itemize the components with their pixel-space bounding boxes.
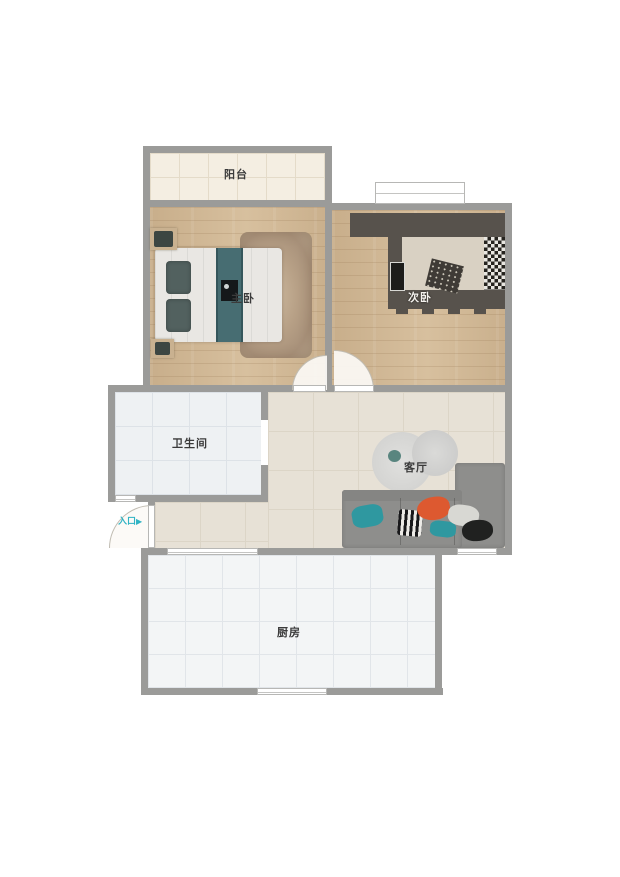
bed-foot [422, 309, 434, 314]
second-bedroom-frame-bottom [388, 290, 505, 309]
bed-pillow-bottom [166, 299, 191, 332]
nightstand-top [150, 228, 177, 250]
bed-foot [396, 309, 408, 314]
wall-bathroom-left [108, 385, 115, 502]
bed-foot [448, 309, 460, 314]
hallway-floor [155, 502, 268, 548]
balcony-label: 阳台 [224, 166, 248, 182]
bathroom-label: 卫生间 [172, 435, 208, 451]
kitchen-window [257, 688, 327, 695]
bed-foot [474, 309, 486, 314]
living-room-window [457, 548, 497, 555]
wall-balcony-top [143, 146, 332, 153]
kitchen-entry-slider [167, 548, 258, 555]
kitchen-floor [148, 555, 435, 688]
entrance-arrow-icon: ▶ [136, 517, 142, 526]
nightstand-lamp [154, 231, 173, 247]
nightstand-lamp [155, 342, 170, 355]
wall-balcony-right [325, 146, 332, 210]
bed-pillow-top [166, 261, 191, 294]
master-bedroom-label: 主卧 [231, 290, 255, 306]
nightstand-bottom [151, 339, 174, 358]
second-bedroom-blanket [484, 237, 505, 290]
wall-second-bedroom-top [325, 203, 512, 210]
wall-left [143, 146, 150, 392]
entrance-label-text: 入口 [118, 517, 136, 527]
kitchen-label: 厨房 [277, 624, 301, 640]
wall-right [505, 203, 512, 555]
bathroom-door-opening [261, 420, 268, 465]
master-bedroom-door-leaf [293, 385, 326, 392]
bathroom-window [115, 495, 136, 502]
second-bedroom-label: 次卧 [408, 289, 432, 305]
entrance-label: 入口▶ [118, 514, 142, 527]
wall-kitchen-left [141, 548, 148, 695]
living-room-label: 客厅 [404, 459, 428, 475]
floor-plan: 入口▶ 阳台 主卧 次卧 卫生间 客厅 厨房 [0, 0, 620, 877]
second-bedroom-door-leaf [334, 385, 374, 392]
wall-balcony-divider [143, 200, 332, 207]
wall-kitchen-right [435, 548, 442, 695]
second-bedroom-window [375, 182, 465, 204]
second-bedroom-wardrobe [350, 213, 505, 237]
entrance-door-leaf [148, 505, 155, 548]
rug-decor-item [388, 450, 401, 462]
second-bedroom-prints [390, 262, 405, 291]
